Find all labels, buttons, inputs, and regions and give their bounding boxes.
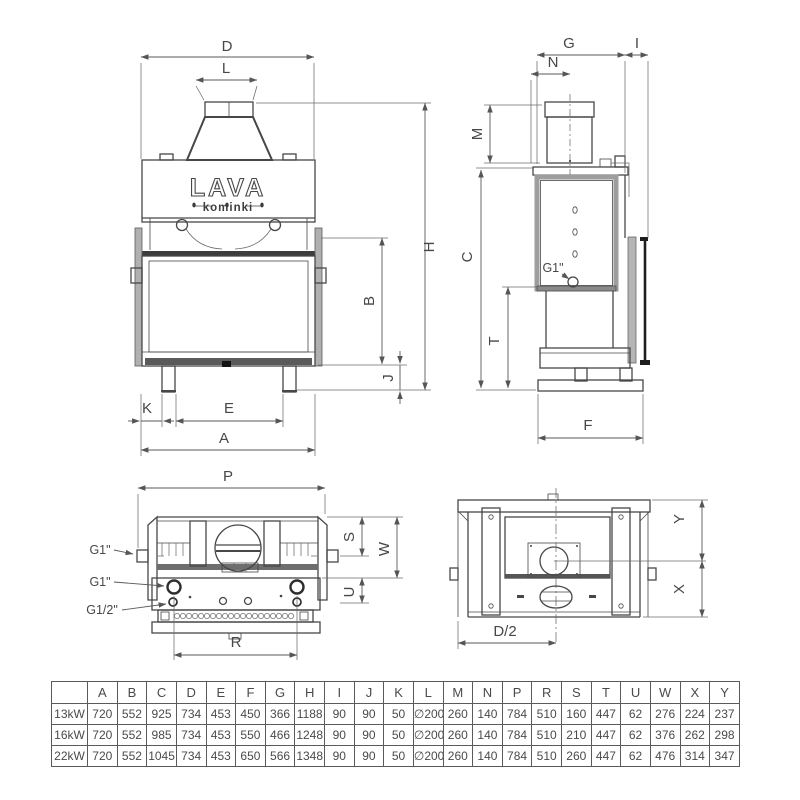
spec-table-head: ABCDEFGHIJKLMNPRSTUWXY	[52, 682, 740, 704]
vent-scallop	[180, 613, 185, 618]
table-cell: 140	[473, 725, 503, 746]
table-cell: 260	[443, 704, 473, 725]
vent-scallop	[270, 613, 275, 618]
door-side	[628, 237, 650, 365]
table-header-cell: P	[502, 682, 532, 704]
table-cell: 447	[591, 746, 621, 767]
table-cell: 466	[265, 725, 295, 746]
table-cell: 260	[443, 746, 473, 767]
table-cell: 734	[176, 746, 206, 767]
table-row: 16kW7205529857344535504661248909050∅2002…	[52, 725, 740, 746]
vent-scallop	[186, 613, 191, 618]
vent-scallop	[246, 613, 251, 618]
g1-label: G1"	[542, 261, 563, 275]
dim-label-E: E	[224, 400, 234, 417]
dim-B: B	[318, 238, 407, 365]
table-header-cell: W	[650, 682, 680, 704]
dim-label-H: H	[421, 242, 438, 253]
vent-scallop	[258, 613, 263, 618]
dim-P: P	[138, 468, 325, 548]
damper-underside	[517, 586, 596, 608]
table-cell: 62	[621, 725, 651, 746]
table-cell: 925	[147, 704, 177, 725]
technical-drawing-page: LAVA kominki	[0, 0, 800, 800]
g1-supply-label: G1"	[89, 575, 110, 589]
table-cell: 262	[680, 725, 710, 746]
table-cell: 1348	[295, 746, 325, 767]
table-corner-cell	[52, 682, 88, 704]
table-cell: 453	[206, 704, 236, 725]
table-cell: 366	[265, 704, 295, 725]
table-cell: 90	[325, 746, 355, 767]
g1-port-right	[291, 581, 304, 594]
dim-label-D: D	[222, 38, 233, 55]
dim-L: L	[196, 60, 257, 100]
dim-F: F	[538, 394, 643, 444]
dim-label-G: G	[563, 35, 575, 52]
dim-label-B: B	[361, 296, 378, 306]
table-cell: 1045	[147, 746, 177, 767]
dim-label-M: M	[469, 128, 486, 141]
dim-label-S: S	[341, 532, 358, 542]
door-sill	[142, 251, 315, 256]
dim-label-F: F	[583, 417, 592, 434]
g1-port-left	[168, 581, 181, 594]
table-cell: 552	[117, 725, 147, 746]
flue-pipe-front	[187, 102, 272, 160]
table-cell: 447	[591, 704, 621, 725]
table-cell: 160	[562, 704, 592, 725]
dim-T: T	[486, 287, 538, 388]
table-cell: 347	[710, 746, 740, 767]
dim-label-P: P	[223, 468, 233, 485]
brand-logo: LAVA	[190, 174, 266, 202]
hinge-left	[177, 220, 188, 231]
table-cell: 784	[502, 725, 532, 746]
drawing-canvas: LAVA kominki	[0, 0, 800, 675]
glass-door	[142, 256, 315, 367]
vent-scallop	[210, 613, 215, 618]
vent-scallop	[252, 613, 257, 618]
tab-right	[648, 568, 656, 580]
table-cell: ∅200	[413, 704, 443, 725]
hinge-right	[270, 220, 281, 231]
dim-label-J: J	[380, 374, 397, 382]
dim-U: U	[340, 578, 369, 603]
ash-drawer	[540, 348, 630, 368]
dim-label-W: W	[376, 541, 393, 556]
table-cell: 784	[502, 704, 532, 725]
dim-label-D2: D/2	[493, 623, 516, 640]
dim-Y: Y	[652, 500, 708, 561]
underside-view: Y X D/2	[450, 488, 708, 649]
dim-J: J	[380, 351, 400, 404]
table-header-cell: B	[117, 682, 147, 704]
dim-label-I: I	[635, 35, 639, 52]
vent-scallop	[198, 613, 203, 618]
dim-label-T: T	[486, 336, 503, 345]
dim-label-Y: Y	[671, 514, 688, 524]
dim-label-K: K	[142, 400, 152, 417]
dim-label-L: L	[222, 60, 230, 77]
vent-scallop	[288, 613, 293, 618]
vent-scallop	[276, 613, 281, 618]
table-cell: 510	[532, 704, 562, 725]
table-cell: ∅200	[413, 746, 443, 767]
dim-K-E-A: K E A	[128, 394, 315, 456]
table-row: 22kW72055210457344536505661348909050∅200…	[52, 746, 740, 767]
table-cell: 650	[236, 746, 266, 767]
table-cell: 453	[206, 725, 236, 746]
vent-scallop	[204, 613, 209, 618]
table-header-cell: G	[265, 682, 295, 704]
tab-left	[450, 568, 458, 580]
spec-table-body: 13kW7205529257344534503661188909050∅2002…	[52, 704, 740, 767]
table-cell: 90	[354, 725, 384, 746]
table-header-cell: K	[384, 682, 414, 704]
base-side	[538, 368, 643, 391]
dim-X: X	[643, 561, 708, 617]
g1-side-label: G1"	[89, 543, 110, 557]
table-cell: 784	[502, 746, 532, 767]
vent-scallop	[282, 613, 287, 618]
table-cell: 566	[265, 746, 295, 767]
vent-hole	[260, 203, 263, 208]
table-header-cell: L	[413, 682, 443, 704]
table-cell: 140	[473, 746, 503, 767]
table-cell: 453	[206, 746, 236, 767]
dim-H: H	[256, 103, 438, 390]
table-cell: 985	[147, 725, 177, 746]
side-casing-right	[315, 228, 322, 366]
table-cell: 50	[384, 725, 414, 746]
table-cell: 376	[650, 725, 680, 746]
side-view: G I N M C T	[459, 35, 650, 444]
top-plate-side	[533, 167, 628, 175]
table-header-row: ABCDEFGHIJKLMNPRSTUWXY	[52, 682, 740, 704]
table-cell: 90	[354, 746, 384, 767]
table-cell: 237	[710, 704, 740, 725]
dim-label-C: C	[459, 251, 476, 262]
table-row-label: 13kW	[52, 704, 88, 725]
table-header-cell: D	[176, 682, 206, 704]
table-row-label: 16kW	[52, 725, 88, 746]
table-header-cell: A	[88, 682, 118, 704]
table-header-cell: F	[236, 682, 266, 704]
spec-table: ABCDEFGHIJKLMNPRSTUWXY 13kW7205529257344…	[51, 681, 740, 767]
table-header-cell: X	[680, 682, 710, 704]
table-cell: 314	[680, 746, 710, 767]
table-header-cell: T	[591, 682, 621, 704]
dim-C: C	[459, 168, 536, 390]
dim-W: W	[322, 517, 403, 578]
table-cell: 720	[88, 704, 118, 725]
dim-label-R: R	[231, 634, 242, 651]
table-cell: 510	[532, 725, 562, 746]
table-header-cell: N	[473, 682, 503, 704]
dim-label-N: N	[548, 54, 559, 71]
legs-front	[161, 366, 297, 392]
vent-scallop	[264, 613, 269, 618]
table-cell: 552	[117, 746, 147, 767]
table-cell: 552	[117, 704, 147, 725]
table-header-cell: C	[147, 682, 177, 704]
table-header-cell: H	[295, 682, 325, 704]
logo-plate: LAVA kominki	[142, 154, 315, 222]
table-header-cell: Y	[710, 682, 740, 704]
table-cell: 50	[384, 704, 414, 725]
table-cell: 90	[325, 704, 355, 725]
table-cell: 210	[562, 725, 592, 746]
g1-side-port-left	[137, 550, 148, 562]
table-row: 13kW7205529257344534503661188909050∅2002…	[52, 704, 740, 725]
dim-R: R	[174, 596, 297, 660]
table-cell: 476	[650, 746, 680, 767]
vent-scallop	[222, 613, 227, 618]
top-plate-underside	[458, 500, 650, 512]
table-cell: 734	[176, 704, 206, 725]
top-view: P S W U R G1" G1" G1/2"	[86, 468, 403, 660]
table-cell: ∅200	[413, 725, 443, 746]
table-cell: 734	[176, 725, 206, 746]
table-cell: 550	[236, 725, 266, 746]
table-header-cell: S	[562, 682, 592, 704]
g1half-port-left	[169, 598, 177, 606]
table-cell: 224	[680, 704, 710, 725]
port-labels-plan: G1" G1" G1/2"	[86, 543, 166, 617]
table-header-cell: I	[325, 682, 355, 704]
dim-D2: D/2	[458, 621, 556, 649]
table-cell: 720	[88, 725, 118, 746]
g1-side-port-right	[327, 550, 338, 562]
table-cell: 90	[354, 704, 384, 725]
table-cell: 260	[443, 725, 473, 746]
table-cell: 450	[236, 704, 266, 725]
table-cell: 1248	[295, 725, 325, 746]
table-cell: 62	[621, 746, 651, 767]
vent-scallop	[228, 613, 233, 618]
dim-I: I	[625, 35, 648, 238]
table-header-cell: M	[443, 682, 473, 704]
side-casing-left	[135, 228, 142, 366]
table-cell: 90	[325, 725, 355, 746]
chamber-underside	[505, 517, 610, 578]
latch-tab	[222, 361, 231, 367]
table-cell: 276	[650, 704, 680, 725]
table-cell: 62	[621, 704, 651, 725]
table-cell: 447	[591, 725, 621, 746]
table-cell: 510	[532, 746, 562, 767]
front-view: LAVA kominki	[128, 38, 438, 456]
table-header-cell: R	[532, 682, 562, 704]
table-cell: 720	[88, 746, 118, 767]
table-row-label: 22kW	[52, 746, 88, 767]
table-header-cell: U	[621, 682, 651, 704]
table-header-cell: J	[354, 682, 384, 704]
vent-scallop	[240, 613, 245, 618]
table-cell: 140	[473, 704, 503, 725]
g1half-label: G1/2"	[86, 603, 118, 617]
front-band-plan	[152, 578, 320, 610]
vent-hole	[225, 203, 228, 208]
table-cell: 50	[384, 746, 414, 767]
vent-hole	[192, 203, 195, 208]
table-header-cell: E	[206, 682, 236, 704]
hood-back-edge	[157, 564, 318, 570]
dim-D: D	[141, 38, 314, 159]
table-cell: 260	[562, 746, 592, 767]
table-cell: 298	[710, 725, 740, 746]
dim-label-X: X	[671, 584, 688, 594]
table-cell: 1188	[295, 704, 325, 725]
vent-scallop	[216, 613, 221, 618]
vent-scallop	[174, 613, 179, 618]
dim-label-A: A	[219, 430, 229, 447]
dim-label-U: U	[341, 587, 358, 598]
vent-scallop	[234, 613, 239, 618]
vent-scallop	[192, 613, 197, 618]
